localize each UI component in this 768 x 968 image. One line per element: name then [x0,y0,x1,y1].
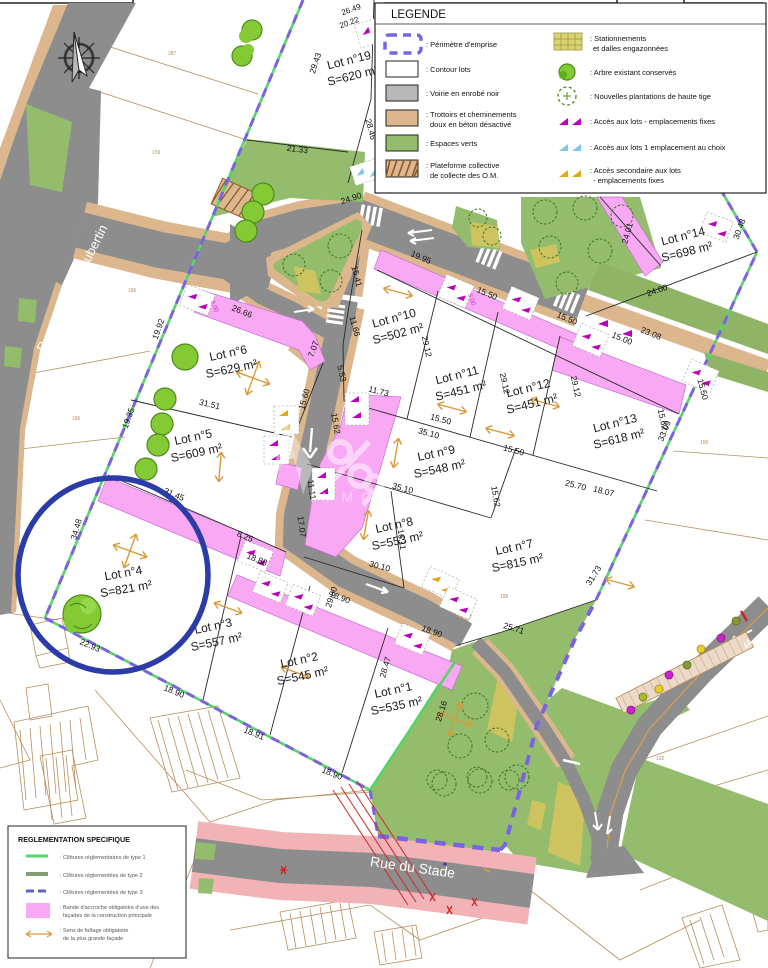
svg-text:196: 196 [700,440,709,446]
svg-text:198: 198 [500,594,509,600]
svg-text:186: 186 [128,288,137,294]
svg-text:: Nouvelles plantations de hau: : Nouvelles plantations de haute tige [590,92,711,101]
svg-text:doux en béton désactivé: doux en béton désactivé [430,120,511,129]
svg-text:REGLEMENTATION SPECIFIQUE: REGLEMENTATION SPECIFIQUE [18,835,130,844]
svg-text:et dalles engazonnées: et dalles engazonnées [593,44,668,53]
svg-text:: Contour lots: : Contour lots [426,65,471,74]
svg-text:: Clôtures réglementaires de t: : Clôtures réglementaires de type 1 [60,855,146,861]
svg-text:: Plateforme collective: : Plateforme collective [426,161,499,170]
svg-text:192: 192 [656,756,665,762]
svg-text:186: 186 [72,416,81,422]
svg-text:: Arbre existant conservés: : Arbre existant conservés [590,68,677,77]
svg-text:159: 159 [152,150,161,156]
svg-text:: Clôtures réglementées de typ: : Clôtures réglementées de type 3 [60,890,143,896]
svg-text:: Accès aux lots - emplacement: : Accès aux lots - emplacements fixes [590,117,715,126]
svg-text:: Trottoirs et cheminements: : Trottoirs et cheminements [426,110,517,119]
svg-text:de collecte des O.M.: de collecte des O.M. [430,171,498,180]
svg-text:: Accès aux lots 1 emplacemen: : Accès aux lots 1 emplacement au choix [590,143,726,152]
svg-text:387: 387 [168,51,177,57]
svg-text:: Clôtures réglementées de typ: : Clôtures réglementées de type 2 [60,873,143,879]
svg-text:façades de la construction pri: façades de la construction principale [63,913,152,919]
svg-text:: Stationnements: : Stationnements [590,34,647,43]
svg-text:: Périmètre d'emprise: : Périmètre d'emprise [426,40,497,49]
svg-text:- emplacements fixes: - emplacements fixes [593,176,664,185]
svg-text:: Accès secondaire aux lots: : Accès secondaire aux lots [590,166,681,175]
svg-text:: Espaces verts: : Espaces verts [426,139,478,148]
svg-text:: Voirie en enrobé noir: : Voirie en enrobé noir [426,89,500,98]
svg-text:: Sens de faîtage obligatoire: : Sens de faîtage obligatoire [60,928,129,934]
svg-text:LEGENDE: LEGENDE [391,9,446,21]
svg-text:: Bande d'accroche obligatoire: : Bande d'accroche obligatoire d'une des [60,905,159,911]
svg-text:IMMOBILIER: IMMOBILIER [310,489,472,505]
svg-text:de la plus grande façade: de la plus grande façade [63,936,123,942]
